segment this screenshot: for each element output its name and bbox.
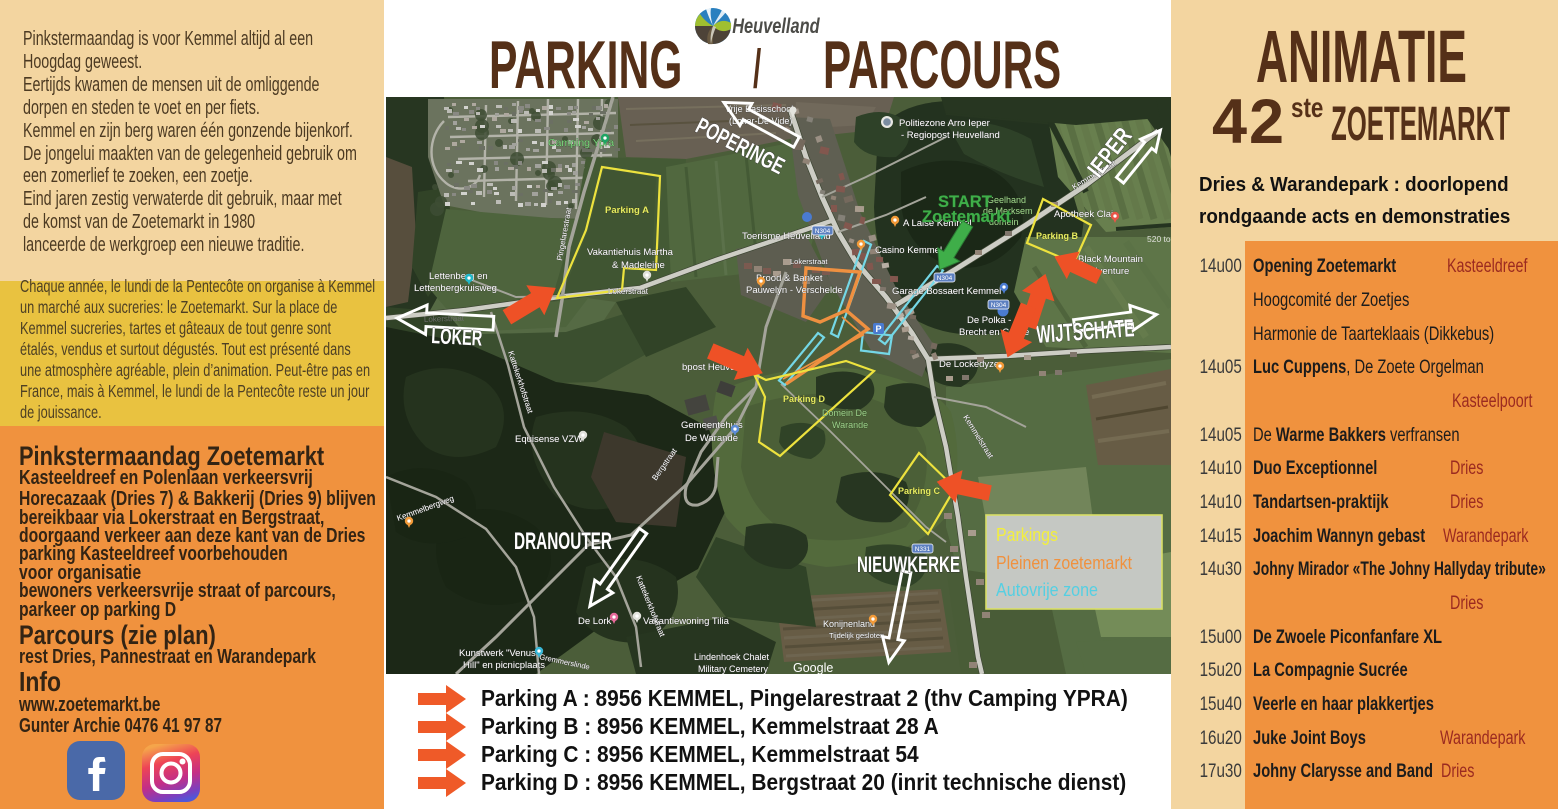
svg-text:Casino Kemmel: Casino Kemmel (875, 245, 942, 256)
svg-text:P: P (875, 324, 881, 334)
svg-text:De Lockedyze: De Lockedyze (939, 359, 999, 370)
svg-text:520 to...: 520 to... (1147, 234, 1171, 244)
svg-text:Lokerstraat: Lokerstraat (790, 257, 828, 266)
svg-text:Geelhand: Geelhand (987, 195, 1026, 205)
svg-text:NIEUWKERKE: NIEUWKERKE (857, 552, 960, 577)
svg-text:- Regiopost Heuvelland: - Regiopost Heuvelland (901, 130, 1000, 141)
svg-text:N304: N304 (937, 275, 953, 282)
svg-text:Zoetemarkt: Zoetemarkt (922, 208, 1011, 226)
svg-text:N304: N304 (815, 228, 831, 235)
svg-text:Heuvelland: Heuvelland (732, 14, 820, 37)
svg-text:Parking B: Parking B (1036, 231, 1079, 241)
svg-text:Parking A: Parking A (605, 205, 649, 216)
svg-text:DRANOUTER: DRANOUTER (514, 528, 612, 555)
svg-text:Pleinen zoetemarkt: Pleinen zoetemarkt (996, 552, 1132, 573)
svg-text:Tijdelijk gesloten: Tijdelijk gesloten (829, 631, 884, 640)
svg-text:Kunstwerk "Venus: Kunstwerk "Venus (459, 648, 536, 659)
svg-text:& Madeleine: & Madeleine (612, 260, 665, 271)
svg-text:Lindenhoek Chalet: Lindenhoek Chalet (694, 652, 770, 662)
svg-text:Lokerstraat: Lokerstraat (608, 287, 649, 296)
svg-text:Equisense VZW: Equisense VZW (515, 434, 583, 445)
svg-text:Lettenberg en: Lettenberg en (429, 271, 488, 282)
svg-text:Vakantiehuis Martha: Vakantiehuis Martha (587, 247, 674, 258)
svg-text:Domein De: Domein De (822, 408, 867, 418)
svg-text:Apotheek Clais: Apotheek Clais (1054, 209, 1118, 220)
svg-text:Warande: Warande (832, 420, 868, 430)
svg-text:Garage Bossaert Kemmel: Garage Bossaert Kemmel (892, 286, 1001, 297)
svg-text:De Lork: De Lork (578, 616, 612, 627)
svg-text:Vakantiewoning Tilia: Vakantiewoning Tilia (643, 616, 730, 627)
svg-text:Parkings: Parkings (996, 524, 1058, 545)
svg-text:N304: N304 (991, 302, 1007, 309)
svg-text:Parking C: Parking C (898, 486, 941, 496)
svg-text:LOKER: LOKER (431, 323, 483, 351)
svg-text:De Warande: De Warande (685, 433, 738, 444)
svg-text:Konijnenland: Konijnenland (823, 619, 875, 629)
svg-text:Lettenbergkruisweg: Lettenbergkruisweg (414, 283, 497, 294)
svg-text:Military Cemetery: Military Cemetery (698, 664, 769, 674)
svg-text:Hill" en picnicplaats: Hill" en picnicplaats (463, 660, 545, 671)
svg-text:Autovrije zone: Autovrije zone (996, 579, 1098, 600)
svg-text:Vrije Basisschool: Vrije Basisschool (725, 104, 793, 114)
svg-text:Google: Google (793, 661, 833, 674)
svg-text:De Polka -: De Polka - (967, 315, 1011, 326)
svg-text:Parking D: Parking D (783, 394, 826, 404)
svg-text:Black Mountain: Black Mountain (1078, 254, 1143, 265)
svg-text:Politiezone Arro Ieper: Politiezone Arro Ieper (899, 118, 990, 129)
svg-text:Brood & Banket: Brood & Banket (756, 273, 823, 284)
